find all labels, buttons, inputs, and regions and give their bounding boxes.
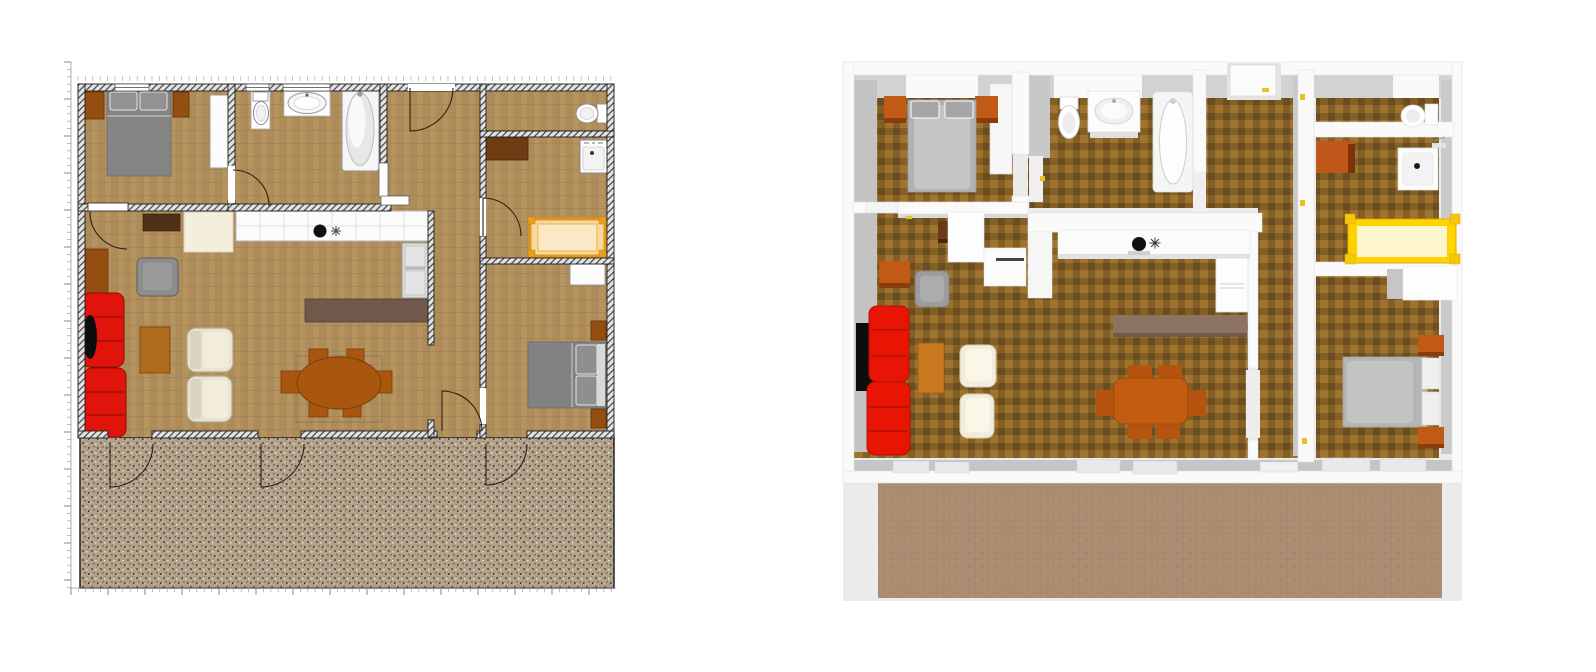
sink-basin-inner	[294, 97, 320, 110]
utility-sink-3d-drain	[1414, 163, 1420, 169]
toilet-bowl-inner	[257, 105, 266, 121]
sideboard-long	[305, 299, 428, 322]
white-cabinet	[184, 212, 233, 252]
door-handle	[1302, 438, 1307, 444]
pillow	[110, 92, 137, 110]
nightstand-3d-edge	[1418, 444, 1444, 448]
bathtub-faucet	[357, 91, 362, 96]
bed-head-strip	[597, 344, 605, 406]
wall-corridor-left	[1248, 440, 1258, 460]
plan-2d-canvas[interactable]	[58, 55, 620, 600]
wall-bedroom-bath	[228, 84, 235, 168]
armchair-cream-back	[190, 331, 201, 369]
window-gap	[1393, 74, 1439, 98]
vanity-3d-shadow	[1090, 132, 1138, 138]
utility-sink-3d-basin	[1403, 153, 1433, 185]
door-threshold	[1246, 370, 1260, 438]
wall-exterior-left	[78, 84, 85, 438]
crib-3d-post	[1450, 214, 1460, 224]
nightstand-3d-edge	[975, 118, 998, 123]
coffee-table	[140, 327, 170, 373]
bed2-3d-headboard	[1422, 392, 1440, 425]
crib-3d-post	[1450, 254, 1460, 264]
door-leaf-open	[381, 196, 409, 205]
window-gap	[906, 74, 978, 98]
nightstand	[591, 321, 606, 340]
wall-exterior-bottom	[527, 431, 614, 438]
exterior-door-threshold	[893, 461, 929, 473]
dining-table	[297, 357, 381, 409]
bathtub-3d-inner	[1160, 100, 1187, 184]
door-opening	[408, 84, 455, 91]
crib-3d-mattress	[1357, 226, 1447, 257]
crib-post	[599, 250, 606, 257]
bed2-3d-headboard	[1422, 358, 1440, 389]
coffee-table-3d	[918, 343, 944, 393]
door-leaf-bedroom1	[866, 202, 898, 213]
wall-kitchen-corridor	[428, 420, 434, 437]
exterior-door-threshold	[1322, 458, 1370, 471]
wardrobe	[210, 95, 230, 168]
armchair-cream-seat	[203, 332, 229, 368]
dresser-white	[570, 262, 605, 285]
crib-mattress	[538, 224, 597, 251]
ruler-top-ticks	[78, 76, 611, 81]
wall-bath-kitchen	[228, 204, 391, 211]
exterior-door-threshold	[935, 462, 969, 473]
armchair-gray-3d-seat	[920, 276, 944, 302]
wall-bath-hall	[1193, 70, 1206, 172]
door-handle	[1040, 176, 1045, 181]
toilet-tank	[253, 92, 268, 101]
crib-post	[528, 250, 535, 257]
sofa-red-3d	[869, 306, 909, 382]
wall-exterior-bottom	[301, 431, 437, 438]
cooktop-icon-3d	[1150, 238, 1161, 249]
exterior-door-threshold	[1077, 460, 1120, 473]
wall-kitchen-band	[1028, 213, 1262, 232]
door-leaf-open	[88, 203, 128, 211]
armchair-cream-3d-seat	[966, 349, 992, 381]
nightstand	[84, 92, 104, 119]
crib-3d-post	[1345, 214, 1355, 224]
wall-top	[843, 62, 1462, 75]
sink-faucet	[305, 93, 308, 96]
kitchen-column	[1028, 232, 1052, 298]
toilet-3d-inner	[1063, 112, 1076, 134]
wall-bedroom-living	[853, 202, 866, 213]
terrain-3d	[878, 478, 1442, 598]
wall-corridor-right	[480, 424, 486, 438]
plan-2d-view[interactable]	[58, 55, 620, 600]
bathtub-highlight	[349, 96, 366, 148]
dining-table-3d	[1114, 378, 1188, 424]
door-opening	[480, 388, 486, 424]
crib-3d-post	[1345, 254, 1355, 264]
wc-toilet-3d-inner	[1406, 110, 1420, 123]
kitchen-sink-pot	[314, 225, 327, 238]
crib-post	[528, 217, 535, 224]
wall-exterior-bottom	[152, 431, 258, 438]
ruler-bottom-ticks-major	[71, 588, 589, 595]
bed2-3d-sheet	[1347, 361, 1413, 423]
aerial-3d-canvas[interactable]	[825, 55, 1470, 605]
exterior-door-threshold	[1133, 461, 1177, 474]
armchair-cream-3d-seat	[966, 398, 990, 432]
utility-sink-basin	[583, 147, 604, 170]
dresser-chocolate	[484, 138, 528, 160]
cabinet-3d-edge	[879, 283, 910, 288]
fridge-door	[405, 271, 425, 295]
desk-3d-shelf-line	[996, 258, 1024, 261]
desk-3d-lower	[984, 248, 1026, 286]
bathtub-3d-faucet	[1170, 98, 1176, 104]
pillow	[140, 92, 167, 110]
wall-left	[843, 62, 854, 472]
armchair-gray-seat	[143, 263, 172, 290]
door-handle	[906, 216, 912, 219]
terrain-ground	[80, 437, 614, 588]
nightstand	[173, 92, 189, 117]
app-canvas	[0, 0, 1596, 672]
door-threshold	[1193, 172, 1206, 212]
pillow	[576, 345, 597, 374]
utility-sink-drain	[590, 151, 594, 155]
wall-kitchen-corridor	[428, 211, 434, 345]
door-opening	[228, 166, 235, 203]
tall-cabinet	[82, 249, 108, 295]
fridge-door	[405, 246, 425, 268]
door-handle	[1262, 88, 1269, 92]
basin-3d-inner	[1101, 103, 1127, 120]
nightstand-3d-edge	[884, 118, 906, 123]
dresser-3d	[1403, 266, 1457, 300]
door-leaf-open	[379, 163, 388, 197]
cooktop-icon	[331, 226, 341, 236]
ruler-left-ticks-major	[64, 62, 71, 580]
exterior-door-threshold	[1260, 462, 1298, 472]
wall-face-bath-left	[1028, 76, 1050, 158]
kitchen-sink-pot-3d	[1132, 237, 1146, 251]
wall-face-corridor-right	[1293, 76, 1298, 456]
door-handle	[1300, 200, 1305, 206]
armchair-cream-back	[190, 379, 201, 419]
wall-exterior-bottom	[78, 431, 108, 438]
sideboard-3d-edge	[1113, 333, 1247, 337]
nightstand	[591, 409, 606, 428]
dresser-3d-shadow	[1387, 269, 1405, 299]
wall-corridor-right	[1298, 70, 1314, 462]
wall-bath-hall	[380, 84, 387, 163]
cabinet-orange-3d-edge	[1348, 144, 1355, 173]
basin-3d-faucet	[1112, 99, 1116, 103]
sideboard-small	[143, 214, 180, 231]
aerial-3d-view[interactable]	[825, 55, 1470, 605]
wc-toilet-3d-tank	[1425, 104, 1438, 125]
pillow-3d	[945, 101, 973, 118]
wc-toilet-inner	[580, 108, 594, 120]
crib-post	[599, 217, 606, 224]
ruler-left-ticks-minor	[67, 62, 71, 587]
floor-hall	[1198, 96, 1298, 208]
door-handle	[1300, 94, 1305, 100]
fridge-3d	[1216, 258, 1248, 312]
wall-child-bedroom2	[480, 258, 614, 264]
sofa-red	[84, 368, 126, 437]
pillow-3d	[911, 101, 939, 118]
wall-bedroom-bath	[1012, 72, 1029, 154]
sofa-red-3d	[867, 382, 910, 455]
entrance-door-leaf	[1230, 65, 1276, 96]
faucet-3d-base	[1432, 143, 1446, 148]
wall-exterior-top	[78, 84, 614, 91]
armchair-cream-seat	[203, 380, 228, 418]
pillow	[576, 376, 597, 405]
nightstand-3d-edge	[1418, 352, 1444, 356]
wall-wc-bottom	[480, 131, 614, 137]
desk-3d	[948, 212, 984, 262]
wall-corridor-right	[480, 84, 486, 198]
exterior-door-threshold	[1380, 459, 1426, 471]
cooktop-grill-3d	[1128, 251, 1150, 255]
wall-bedroom-living	[128, 204, 235, 211]
